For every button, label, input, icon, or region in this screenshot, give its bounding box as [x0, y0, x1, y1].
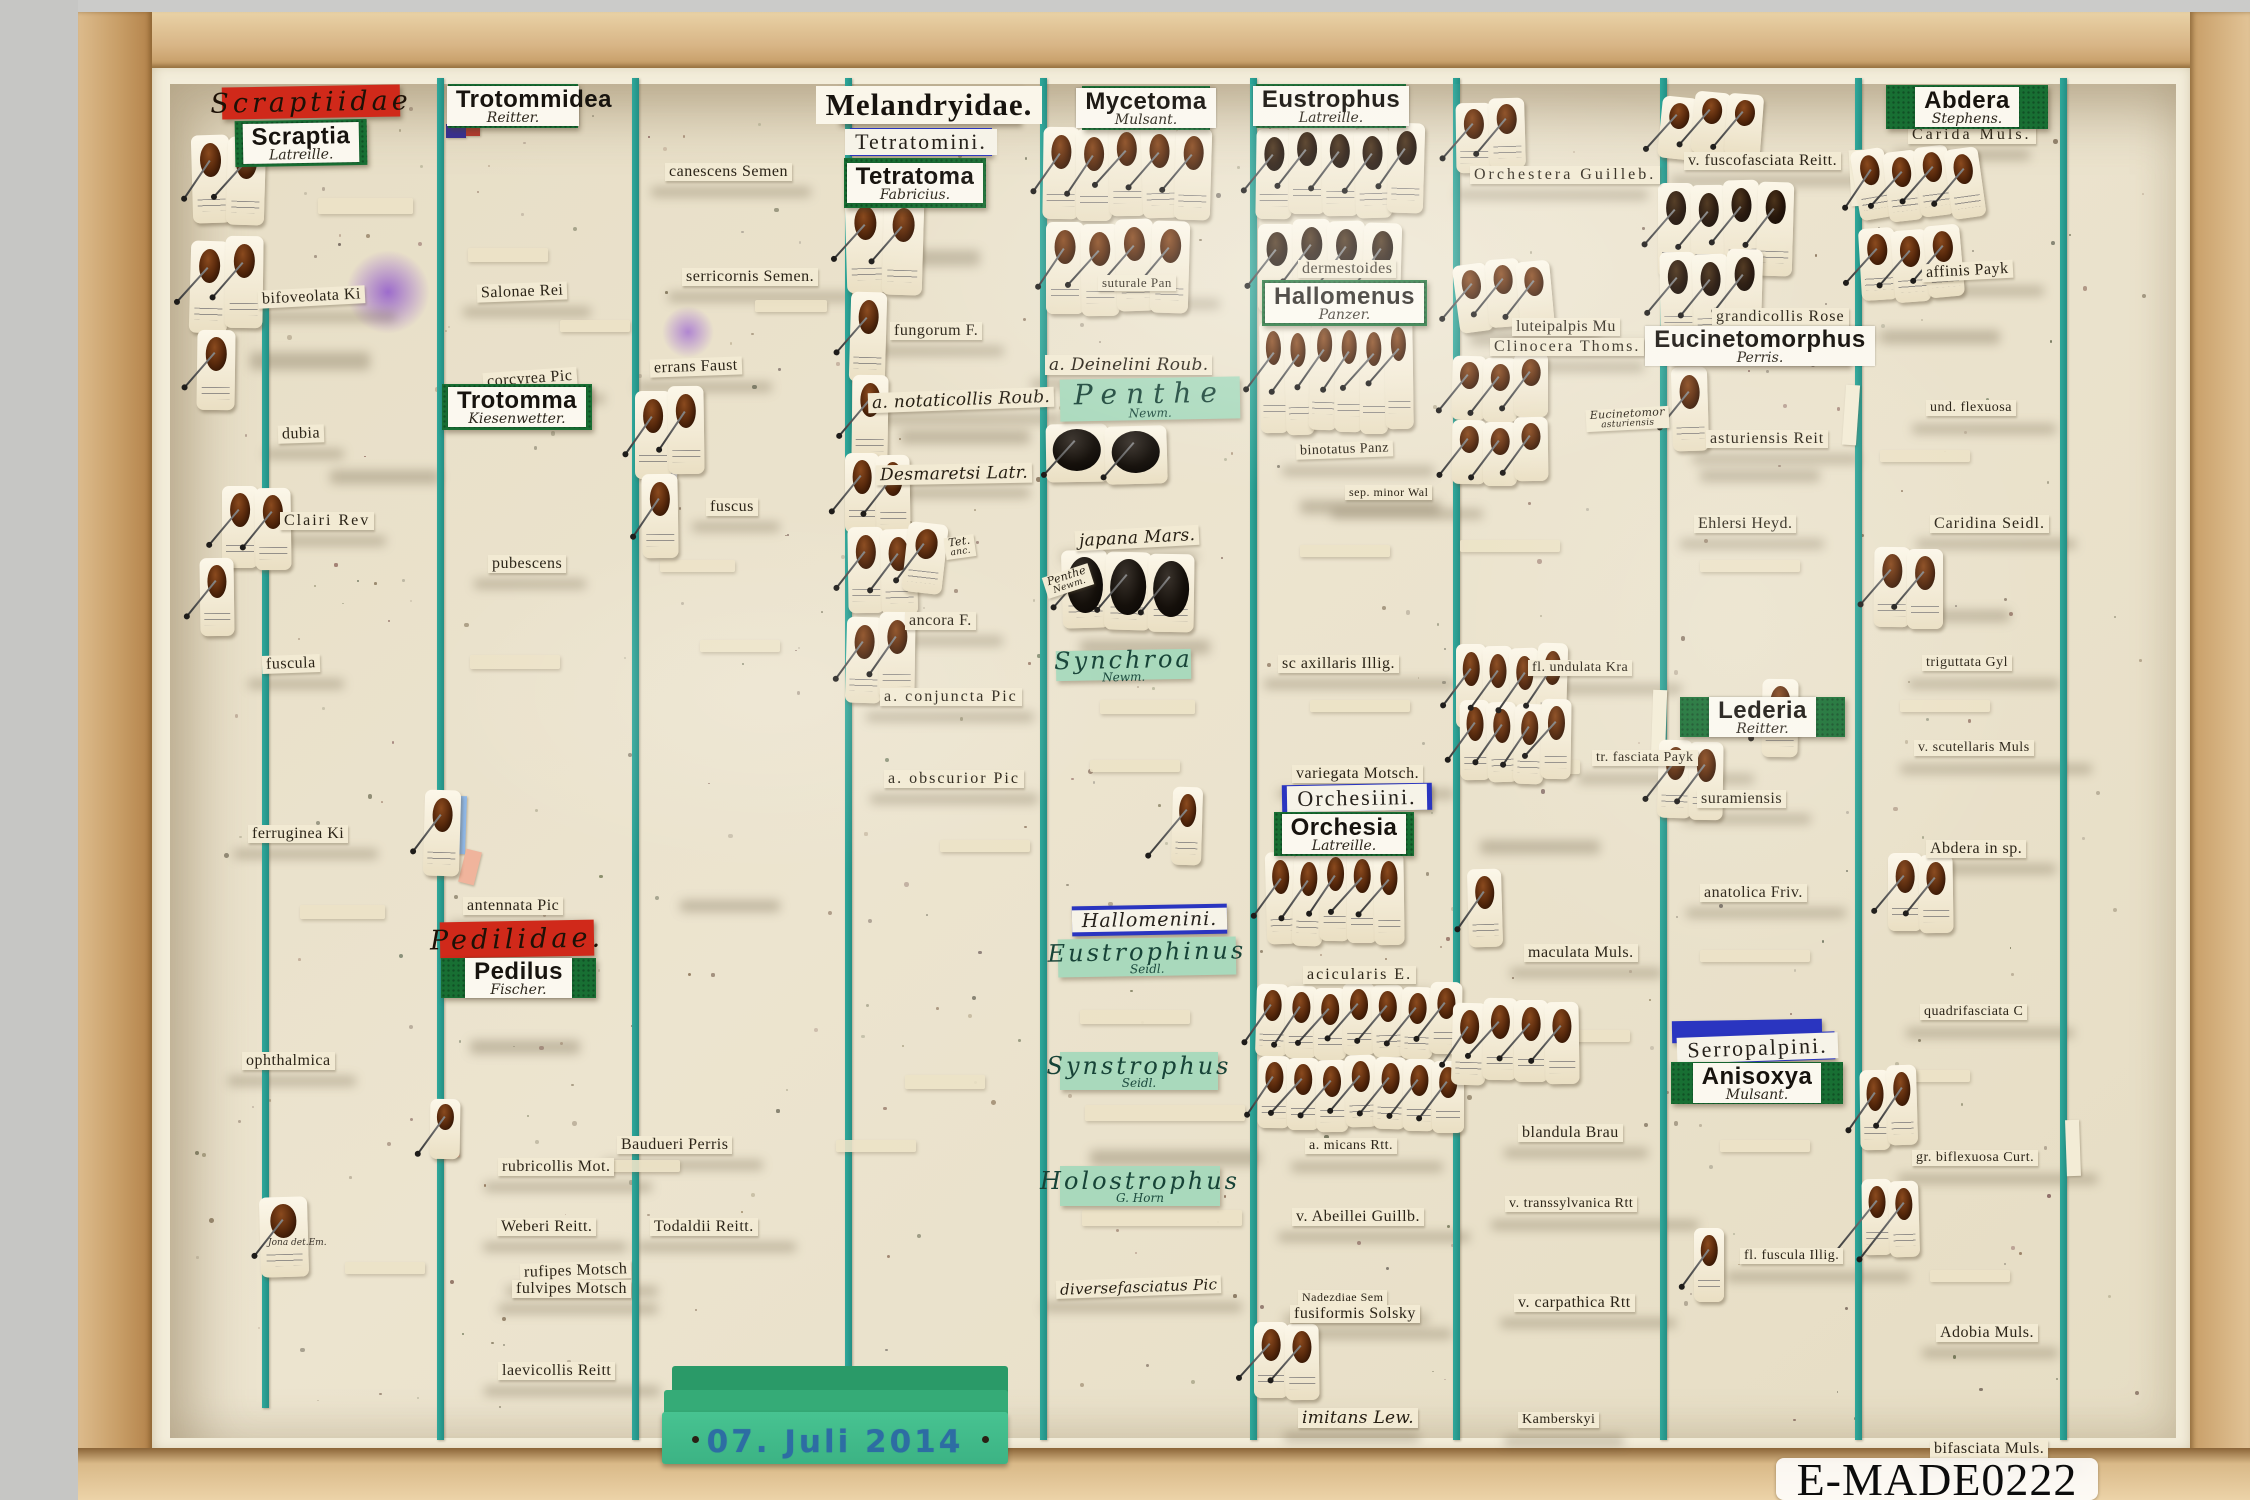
beetle-specimen	[1915, 556, 1935, 590]
species-label: fuscula	[262, 654, 320, 674]
label-shadow	[1291, 1162, 1443, 1172]
beetle-specimen	[1522, 359, 1541, 386]
species-label: acicularis E.	[1303, 966, 1416, 984]
dust-speck	[2139, 659, 2142, 662]
genus-label-card: EustrophusLatreille.	[1253, 86, 1409, 126]
beetle-specimen	[1265, 1062, 1283, 1092]
dust-speck	[1152, 687, 1155, 690]
dust-speck	[387, 1142, 391, 1146]
species-label: Nadezdiae Sem	[1298, 1290, 1387, 1305]
dust-speck	[1540, 615, 1542, 617]
label-shadow	[474, 579, 586, 589]
genus-author: Latreille.	[1291, 839, 1398, 853]
dust-speck	[488, 165, 490, 167]
genus-label: LederiaReitter.	[1680, 697, 1845, 737]
dust-speck	[1893, 807, 1897, 811]
blank-paper-strip	[940, 840, 1030, 852]
beetle-specimen	[1699, 193, 1719, 227]
beetle-specimen	[1896, 860, 1915, 893]
label-shadow	[483, 1242, 627, 1252]
specimen-card	[1289, 124, 1325, 214]
specimen-data-lines	[1760, 250, 1788, 263]
specimen-card	[189, 240, 230, 333]
dust-speck	[864, 832, 867, 835]
dust-speck	[2082, 837, 2085, 840]
dust-speck	[224, 853, 229, 858]
beetle-specimen	[1460, 1010, 1480, 1045]
dust-speck	[742, 663, 744, 665]
dust-speck	[976, 541, 978, 543]
specimen-card	[1387, 123, 1425, 214]
species-label: fl. undulata Kra	[1528, 660, 1632, 676]
genus-label: TrotommideaReitter.	[448, 84, 578, 128]
tribe-name: Orchesiini.	[1287, 783, 1427, 811]
blank-paper-strip	[1090, 760, 1180, 772]
species-label: v. scutellaris Muls	[1914, 740, 2034, 756]
blank-paper-strip	[318, 198, 413, 214]
label-shadow	[692, 522, 780, 532]
beetle-specimen	[1408, 993, 1426, 1024]
beetle-specimen	[1521, 711, 1538, 745]
specimen-card	[882, 198, 925, 295]
dust-speck	[1130, 990, 1132, 992]
dust-speck	[1846, 870, 1848, 872]
specimen-data-lines	[639, 455, 666, 467]
dust-speck	[572, 1121, 577, 1126]
specimen-data-lines	[201, 387, 230, 399]
genus-label-card: TrotommideaReitter.	[447, 86, 579, 126]
genus-label: EustrophusLatreille.	[1256, 84, 1406, 128]
beetle-specimen	[1552, 1009, 1571, 1043]
species-label: laevicollis Reitt	[498, 1362, 615, 1380]
specimen-data-lines	[1047, 194, 1075, 206]
dust-speck	[926, 914, 928, 916]
dust-speck	[1231, 452, 1233, 454]
beetle-specimen	[199, 249, 221, 284]
dust-speck	[917, 1234, 921, 1238]
pin-shadow	[470, 1040, 580, 1054]
dust-speck	[741, 1211, 743, 1213]
dust-speck	[535, 1140, 539, 1144]
specimen-card	[635, 391, 671, 479]
label-shadow	[228, 1076, 356, 1086]
blank-paper-strip	[1700, 560, 1800, 572]
specimen-card	[1888, 853, 1922, 931]
species-label: blandula Brau	[1518, 1124, 1623, 1142]
dust-speck	[1528, 502, 1531, 505]
label-shadow	[1331, 509, 1483, 519]
beetle-specimen	[1321, 994, 1339, 1024]
blank-paper-strip	[1460, 540, 1560, 552]
dust-speck	[647, 1214, 650, 1217]
label-shadow	[1264, 679, 1456, 689]
dust-speck	[730, 342, 732, 344]
paper-scrap	[2065, 1120, 2081, 1176]
specimen-data-lines	[1389, 401, 1410, 413]
dust-speck	[1260, 950, 1263, 953]
genus-label-card: TetratomaFabricius.	[847, 163, 984, 203]
genus-label: HallomenusPanzer.	[1262, 280, 1427, 326]
genus-author: Panzer.	[1274, 308, 1415, 322]
dust-speck	[1216, 193, 1221, 198]
genus-label: MycetomaMulsant.	[1082, 86, 1210, 130]
label-shadow	[1042, 1302, 1242, 1312]
tribe-label: Serropalpini.	[1680, 1031, 1836, 1064]
blank-paper-strip	[560, 320, 630, 332]
pin-shadow	[680, 900, 780, 912]
beetle-specimen	[854, 624, 875, 659]
dust-speck	[711, 973, 714, 976]
genus-author: Newm.	[1129, 406, 1172, 419]
specimen-card	[1104, 425, 1168, 485]
dust-speck	[2053, 139, 2058, 144]
genus-name: Pedilus	[474, 959, 563, 984]
beetle-specimen	[1734, 257, 1755, 292]
beetle-specimen	[1464, 109, 1484, 139]
dust-speck	[2011, 1246, 2014, 1249]
beetle-specimen	[1668, 102, 1690, 130]
family-name: Pedilidae.	[430, 922, 605, 956]
beetle-specimen	[1522, 1007, 1541, 1041]
pin-shadow	[1700, 470, 1820, 482]
specimen-data-lines	[197, 198, 226, 211]
specimen-data-lines	[647, 534, 675, 546]
beetle-specimen	[643, 399, 663, 433]
beetle-specimen	[1323, 1066, 1341, 1096]
dust-speck	[1233, 1294, 1237, 1298]
specimen-data-lines	[851, 267, 882, 280]
specimen-card	[224, 236, 263, 329]
blank-paper-strip	[905, 1075, 985, 1089]
dust-speck	[1979, 1388, 1982, 1391]
dust-speck	[2142, 193, 2144, 195]
species-label: dubia	[278, 424, 325, 444]
beetle-specimen	[1336, 229, 1358, 264]
species-label: rubricollis Mot.	[498, 1158, 614, 1176]
dust-speck	[592, 115, 594, 117]
label-shadow	[484, 1182, 652, 1192]
blank-paper-strip	[1082, 1210, 1242, 1226]
dust-speck	[751, 333, 753, 335]
dust-speck	[349, 1176, 352, 1179]
pin-shadow	[1480, 840, 1600, 854]
dust-speck	[1406, 610, 1410, 614]
dust-speck	[688, 973, 691, 976]
label-shadow	[1908, 679, 2060, 689]
specimen-card	[199, 558, 234, 636]
species-label: fuscus	[706, 498, 758, 516]
species-label: und. flexuosa	[1926, 400, 2016, 416]
dust-speck	[1794, 969, 1796, 971]
beetle-specimen	[1697, 749, 1716, 782]
dust-speck	[978, 951, 982, 955]
dust-speck	[1766, 370, 1769, 373]
specimen-mini-label: Jona det.Em.	[268, 1238, 327, 1248]
dust-speck	[778, 368, 780, 370]
specimen-card	[1384, 317, 1414, 429]
beetle-specimen	[1351, 1061, 1369, 1092]
dust-speck	[1066, 884, 1068, 886]
family-label-handwritten: Scraptiidae	[222, 84, 401, 119]
specimen-data-lines	[1327, 191, 1355, 203]
stamp-pin-head	[982, 1436, 989, 1443]
blank-paper-strip	[468, 248, 548, 262]
family-name: Melandryidae.	[816, 86, 1043, 124]
dust-speck	[1733, 1233, 1735, 1235]
pin-shadow	[330, 470, 440, 484]
dust-speck	[1699, 1124, 1702, 1127]
specimen-data-lines	[1264, 405, 1285, 417]
dust-speck	[868, 919, 872, 923]
beetle-specimen	[1294, 1064, 1312, 1094]
beetle-specimen	[270, 1204, 297, 1238]
blank-paper-strip	[470, 655, 560, 669]
specimen-data-lines	[1517, 760, 1540, 773]
dust-speck	[399, 954, 403, 958]
species-label: errans Faust	[650, 356, 742, 377]
species-label-handwritten: imitans Lew.	[1298, 1408, 1418, 1428]
genus-author: Stephens.	[1924, 112, 2010, 126]
label-shadow	[1504, 1436, 1624, 1446]
genus-name: Anisoxya	[1702, 1064, 1813, 1089]
beetle-specimen	[234, 244, 255, 278]
specimen-data-lines	[1391, 188, 1419, 201]
label-shadow	[1680, 539, 1824, 549]
dust-speck	[2044, 1146, 2048, 1150]
specimen-data-lines	[1323, 916, 1346, 928]
tribe-name: Hallomenini.	[1072, 908, 1228, 933]
genus-author: Latreille.	[1262, 111, 1400, 125]
dust-speck	[786, 1089, 788, 1091]
species-label: serricornis Semen.	[682, 268, 818, 286]
beetle-specimen	[858, 300, 879, 335]
dust-speck	[1426, 872, 1430, 876]
beetle-specimen	[1292, 992, 1310, 1022]
family-name: Scraptiidae	[210, 85, 412, 120]
dust-speck	[2019, 1252, 2022, 1255]
genus-author: Kiesenwetter.	[457, 412, 577, 426]
beetle-specimen	[1765, 190, 1786, 225]
beetle-specimen	[1264, 137, 1284, 171]
label-shadow	[1692, 454, 1860, 464]
beetle-specimen	[1734, 99, 1756, 126]
dust-speck	[417, 1397, 419, 1399]
specimen-data-lines	[1114, 191, 1142, 203]
dust-speck	[1901, 490, 1903, 492]
specimen-card	[1671, 367, 1709, 452]
dust-speck	[388, 620, 390, 622]
dust-speck	[502, 1317, 506, 1321]
divider-tape	[437, 78, 444, 1440]
dust-speck	[1644, 1123, 1648, 1127]
blank-paper-strip	[755, 300, 827, 312]
blank-paper-strip	[1080, 1010, 1190, 1024]
dust-speck	[368, 794, 373, 799]
specimen-data-lines	[1455, 1061, 1481, 1074]
specimen-data-lines	[1893, 1234, 1916, 1247]
dust-speck	[304, 192, 307, 195]
genus-label-card: TrotommaKiesenwetter.	[448, 387, 586, 427]
dust-speck	[885, 1349, 888, 1352]
blank-paper-strip	[610, 1160, 680, 1172]
genus-label-handwritten: PentheNewm.	[1060, 376, 1241, 421]
dust-speck	[392, 741, 394, 743]
beetle-specimen	[207, 565, 226, 598]
dust-speck	[1224, 1195, 1226, 1197]
label-shadow	[1510, 968, 1662, 978]
specimen-data-lines	[883, 674, 911, 686]
species-label: v. transsylvanica Rtt	[1505, 1196, 1637, 1212]
genus-label-handwritten: SynchroaNewm.	[1056, 649, 1192, 681]
dust-speck	[1681, 636, 1686, 641]
species-label: Baudueri Perris	[617, 1136, 732, 1154]
specimen-data-lines	[1677, 427, 1705, 440]
specimen-data-lines	[1891, 1121, 1914, 1134]
beetle-specimen	[1272, 860, 1289, 894]
species-label: fusiformis Solsky	[1290, 1305, 1420, 1323]
genus-name: Orchesia	[1291, 815, 1398, 840]
specimen-data-lines	[1147, 193, 1175, 206]
specimen-data-lines	[849, 679, 877, 692]
genus-name: Trotomma	[457, 388, 577, 413]
beetle-specimen	[1263, 990, 1281, 1021]
specimen-data-lines	[1494, 146, 1522, 159]
specimen-card	[1287, 1058, 1319, 1130]
specimen-data-lines	[1698, 1280, 1721, 1292]
dust-speck	[695, 1309, 697, 1311]
specimen-card	[1284, 1324, 1319, 1400]
specimen-data-lines	[1338, 404, 1359, 416]
label-shadow	[1912, 424, 2056, 434]
genus-label: TrotommaKiesenwetter.	[442, 384, 592, 430]
dust-speck	[1446, 937, 1449, 940]
dust-speck	[314, 585, 316, 587]
label-shadow	[1456, 190, 1648, 200]
label-shadow	[1916, 539, 2076, 549]
divider-tape	[632, 78, 639, 1440]
label-shadow	[234, 849, 378, 859]
dust-speck	[1028, 662, 1030, 664]
species-label: Clairi Rev	[280, 512, 374, 530]
dust-speck	[2056, 1378, 2058, 1380]
specimen-data-lines	[853, 357, 881, 370]
beetle-specimen	[1354, 859, 1371, 893]
genus-author: Reitter.	[1718, 722, 1807, 736]
species-label: Ehlersi Heyd.	[1694, 515, 1796, 533]
species-label: ancora F.	[905, 612, 976, 630]
specimen-data-lines	[907, 569, 939, 584]
genus-name: Eustrophus	[1262, 87, 1400, 112]
wood-frame-right	[2190, 12, 2250, 1500]
genus-label: PedilusFischer.	[441, 958, 596, 998]
dust-speck	[339, 234, 341, 236]
dust-speck	[1099, 341, 1101, 343]
dust-speck	[1467, 1095, 1472, 1100]
blank-paper-strip	[345, 1262, 425, 1274]
genus-label: ScraptiaLatreille.	[235, 119, 368, 167]
beetle-specimen	[1084, 137, 1104, 171]
dust-speck	[2011, 973, 2014, 976]
specimen-card	[222, 486, 258, 568]
dust-speck	[1080, 1383, 1084, 1387]
specimen-card	[196, 330, 235, 411]
specimen-data-lines	[1312, 402, 1334, 415]
genus-author: Seidl.	[1130, 962, 1165, 975]
beetle-specimen	[432, 797, 453, 832]
beetle-specimen	[1700, 262, 1721, 297]
dust-speck	[904, 882, 909, 887]
genus-name: Penthe	[1074, 378, 1227, 409]
species-label: ferruginea Ki	[248, 825, 348, 843]
beetle-specimen	[853, 460, 872, 494]
beetle-specimen	[1396, 131, 1417, 166]
background-left	[0, 0, 78, 1500]
specimen-card	[1042, 127, 1079, 219]
specimen-data-lines	[1296, 921, 1319, 934]
dust-speck	[954, 589, 958, 593]
species-label: Orchestera Guilleb.	[1470, 166, 1660, 184]
specimen-data-lines	[260, 546, 288, 558]
dust-speck	[1530, 251, 1532, 253]
genus-label-card: PedilusFischer.	[465, 958, 572, 998]
beetle-specimen	[1491, 364, 1510, 391]
genus-label-card: OrchesiaLatreille.	[1282, 814, 1407, 854]
dust-speck	[402, 579, 405, 582]
beetle-specimen	[1475, 876, 1495, 909]
label-shadow	[636, 1242, 796, 1252]
dust-speck	[1642, 227, 1645, 230]
specimen-data-lines	[1051, 289, 1080, 301]
genus-label: AnisoxyaMulsant.	[1671, 1062, 1843, 1104]
dust-speck	[681, 602, 684, 605]
genus-label-card: MycetomaMulsant.	[1076, 88, 1215, 128]
dust-speck	[2047, 481, 2049, 483]
genus-name: Lederia	[1718, 698, 1807, 723]
dust-speck	[991, 1100, 996, 1105]
genus-label-card: EucinetomorphusPerris.	[1645, 326, 1875, 366]
beetle-specimen	[1267, 232, 1288, 266]
dust-speck	[298, 958, 301, 961]
specimen-data-lines	[1289, 1377, 1315, 1389]
pin-shadow	[1880, 330, 2000, 344]
specimen-data-lines	[886, 591, 914, 604]
label-shadow	[651, 187, 811, 197]
dust-speck	[2047, 1194, 2051, 1198]
specimen-card	[1373, 853, 1404, 945]
dust-speck	[1573, 151, 1575, 153]
genus-name: Hallomenus	[1274, 284, 1415, 309]
dust-speck	[322, 187, 325, 190]
dust-speck	[462, 1333, 464, 1335]
tribe-name: Tetratomini.	[845, 129, 997, 155]
specimen-card	[1540, 699, 1571, 779]
genus-label-card: AbderaStephens.	[1915, 87, 2019, 127]
species-label: fl. fuscula Illig.	[1740, 1248, 1843, 1264]
label-shadow	[1726, 1272, 1910, 1282]
date-stamp-text: 07. Juli 2014	[662, 1424, 1008, 1460]
dust-speck	[374, 582, 377, 585]
genus-label: EucinetomorphusPerris.	[1670, 326, 1850, 366]
genus-author: Fischer.	[474, 983, 563, 997]
specimen-card	[845, 453, 879, 533]
background-top	[0, 0, 2250, 12]
blank-paper-strip	[1085, 1105, 1245, 1121]
dust-speck	[1674, 1121, 1678, 1125]
specimen-card	[1544, 1002, 1579, 1084]
dust-speck	[836, 362, 839, 365]
species-label: Adobia Muls.	[1936, 1324, 2038, 1342]
beetle-specimen	[1300, 862, 1317, 896]
